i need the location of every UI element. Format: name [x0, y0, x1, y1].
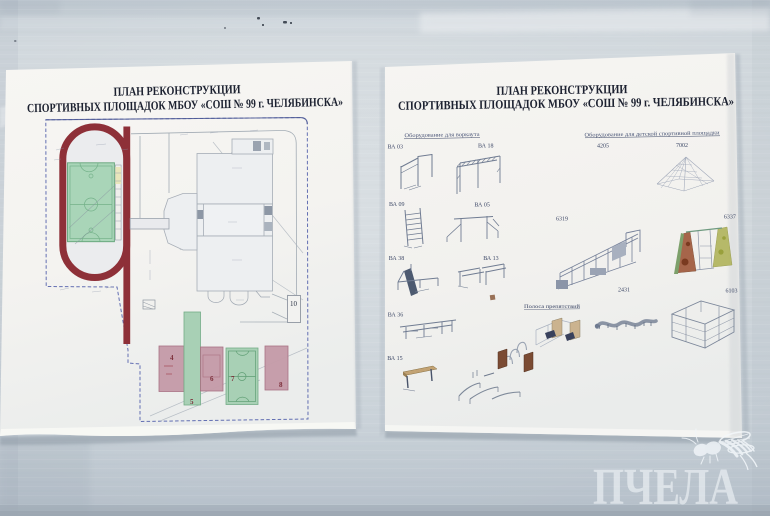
svg-text:ВА 38: ВА 38: [389, 256, 404, 262]
svg-text:10: 10: [290, 300, 298, 308]
svg-text:ПЧЕЛА: ПЧЕЛА: [593, 459, 738, 516]
svg-text:ВА 15: ВА 15: [387, 356, 402, 362]
svg-text:ВА 05: ВА 05: [474, 203, 489, 209]
svg-text:ВА 18: ВА 18: [478, 144, 493, 150]
svg-text:5: 5: [190, 398, 194, 406]
svg-text:ВА 09: ВА 09: [389, 202, 404, 208]
svg-text:2431: 2431: [618, 288, 630, 294]
svg-text:ВА 03: ВА 03: [388, 145, 403, 151]
svg-text:4205: 4205: [597, 144, 609, 150]
svg-text:6337: 6337: [724, 215, 736, 221]
svg-text:7: 7: [231, 375, 235, 383]
svg-text:8: 8: [279, 381, 283, 389]
svg-text:ВА 36: ВА 36: [388, 313, 403, 319]
svg-text:6319: 6319: [556, 216, 568, 222]
svg-text:ВА 13: ВА 13: [483, 256, 498, 262]
svg-text:6103: 6103: [726, 289, 738, 295]
svg-text:4: 4: [170, 354, 174, 362]
svg-text:7002: 7002: [676, 143, 688, 149]
svg-text:6: 6: [210, 375, 214, 383]
